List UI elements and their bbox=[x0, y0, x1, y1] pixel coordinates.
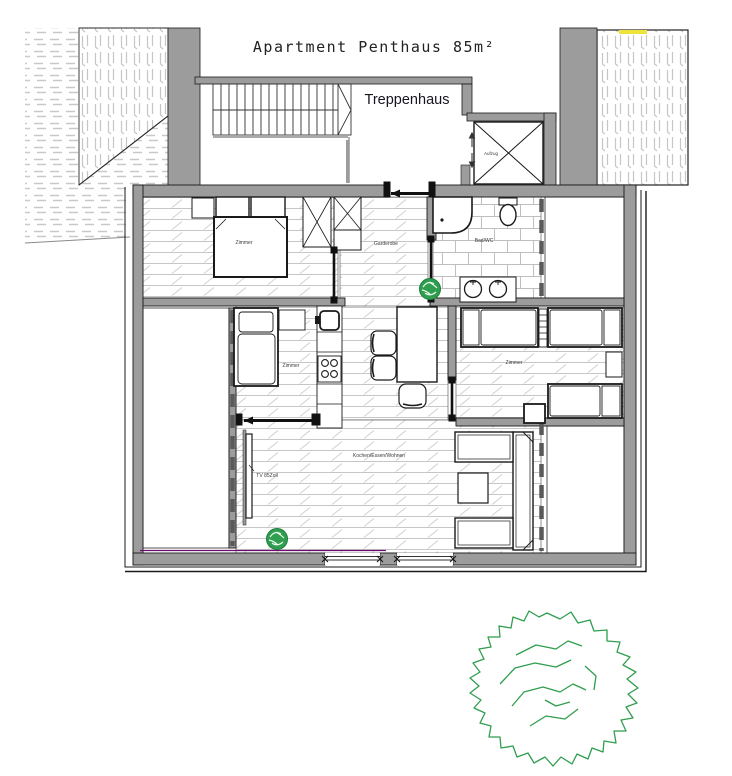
stairs bbox=[213, 84, 351, 135]
label-tv: TV 85Zoll bbox=[256, 473, 277, 479]
shower bbox=[433, 197, 472, 233]
room-terrace-topright bbox=[545, 197, 624, 298]
wall-band-right bbox=[560, 28, 597, 185]
stove bbox=[318, 356, 341, 382]
label-living: Kochen/Essen/Wohnen bbox=[353, 453, 405, 459]
label-bedroom-main: Zimmer bbox=[236, 240, 253, 246]
floor-plan: Apartment Penthaus 85m² Treppenhaus Aufz… bbox=[0, 0, 732, 776]
label-bathroom: Bad/WC bbox=[475, 238, 494, 244]
roof-yellow-marker bbox=[619, 30, 647, 34]
ladder bbox=[539, 309, 547, 347]
toilet bbox=[499, 198, 517, 226]
dresser bbox=[279, 310, 305, 330]
nightstand bbox=[606, 352, 622, 377]
stair-partition bbox=[346, 140, 349, 183]
vanity-double-sink bbox=[460, 277, 516, 302]
label-bedroom-small: Zimmer bbox=[283, 363, 300, 369]
coffee-table bbox=[458, 473, 488, 503]
elevator-area bbox=[461, 113, 556, 186]
plant-bathroom bbox=[420, 279, 441, 300]
label-staircase: Treppenhaus bbox=[365, 92, 450, 108]
chair bbox=[371, 331, 396, 355]
tree bbox=[470, 611, 638, 766]
plant-living bbox=[267, 529, 288, 550]
label-elevator: Aufzug bbox=[484, 151, 499, 156]
tv bbox=[246, 434, 252, 518]
double-bed bbox=[214, 217, 287, 277]
room-terrace-left bbox=[143, 308, 229, 548]
chair bbox=[371, 356, 396, 380]
wall-band-left bbox=[168, 28, 200, 187]
room-terrace-bottomright bbox=[547, 426, 624, 553]
stool bbox=[524, 404, 545, 423]
nightstand bbox=[192, 198, 214, 218]
dining-table bbox=[397, 307, 437, 382]
label-bedroom-right: Zimmer bbox=[506, 360, 523, 366]
roof-right bbox=[597, 30, 688, 185]
page-title: Apartment Penthaus 85m² bbox=[253, 38, 495, 56]
label-hallway: Garderobe bbox=[374, 241, 398, 247]
